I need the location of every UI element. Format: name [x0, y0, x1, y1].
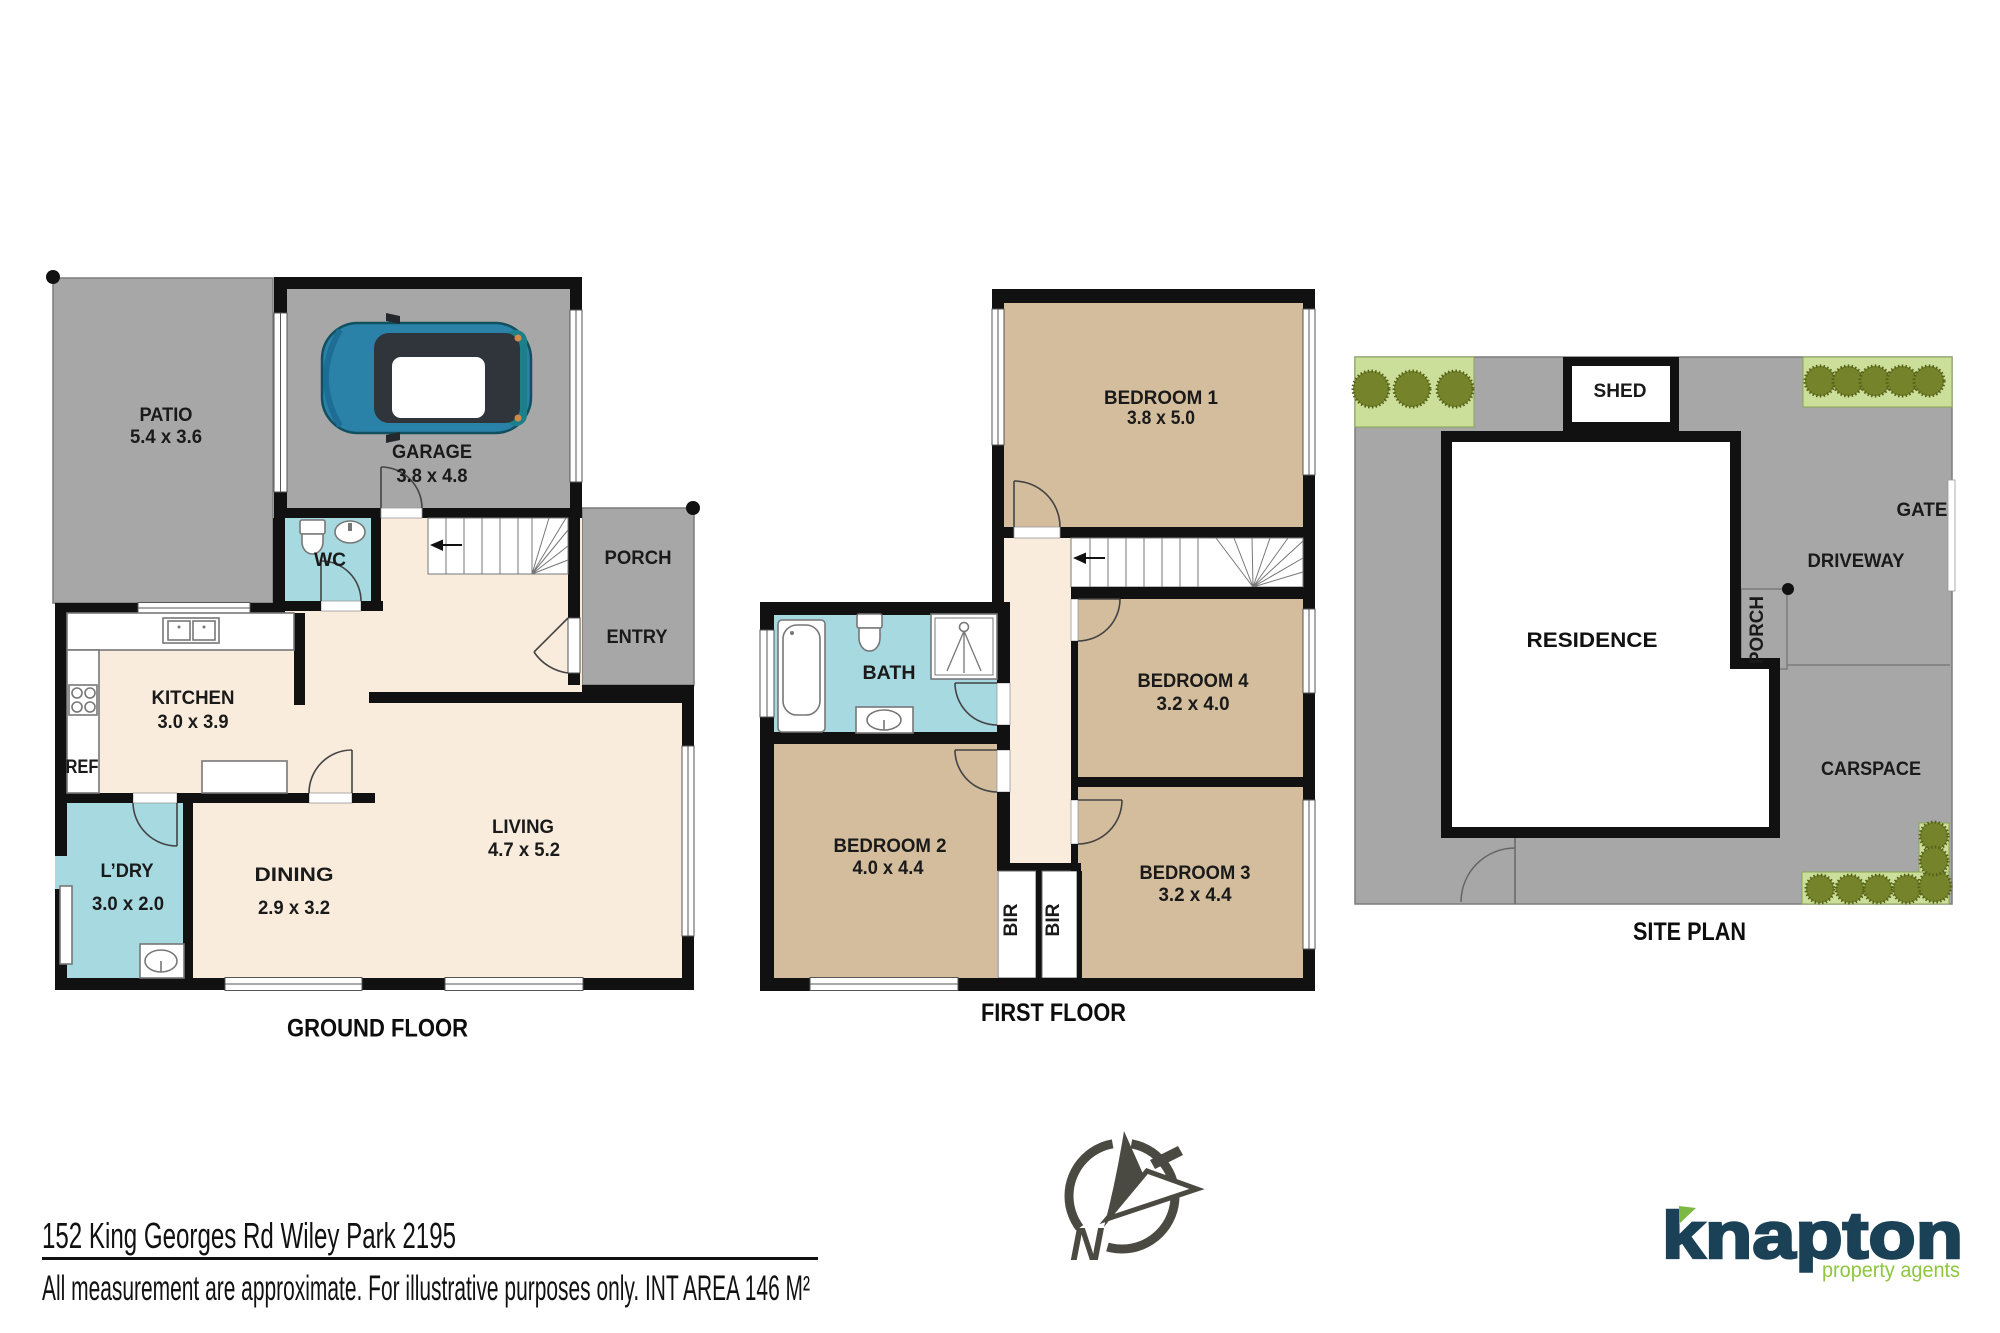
svg-text:GROUND FLOOR: GROUND FLOOR: [287, 1015, 468, 1043]
svg-text:BEDROOM 3: BEDROOM 3: [1140, 863, 1251, 884]
svg-text:N: N: [1070, 1218, 1104, 1270]
svg-text:All measurement are approximat: All measurement are approximate. For ill…: [42, 1269, 810, 1308]
svg-text:BEDROOM 4: BEDROOM 4: [1138, 671, 1249, 692]
svg-text:LIVING: LIVING: [492, 817, 554, 838]
svg-text:3.0 x 2.0: 3.0 x 2.0: [92, 894, 164, 915]
svg-text:SITE PLAN: SITE PLAN: [1633, 918, 1746, 946]
svg-text:KITCHEN: KITCHEN: [152, 688, 235, 709]
svg-text:property agents: property agents: [1822, 1259, 1960, 1282]
svg-text:BIR: BIR: [1001, 903, 1022, 936]
svg-text:BATH: BATH: [863, 663, 916, 684]
svg-text:RESIDENCE: RESIDENCE: [1527, 629, 1658, 652]
svg-text:4.7 x 5.2: 4.7 x 5.2: [488, 840, 560, 861]
svg-text:3.2 x 4.4: 3.2 x 4.4: [1159, 885, 1232, 906]
svg-text:GATE: GATE: [1897, 500, 1948, 521]
svg-text:4.0 x 4.4: 4.0 x 4.4: [853, 858, 924, 879]
svg-text:DINING: DINING: [255, 865, 334, 886]
svg-text:3.2 x 4.0: 3.2 x 4.0: [1157, 694, 1230, 715]
svg-text:GARAGE: GARAGE: [392, 442, 472, 463]
svg-text:ENTRY: ENTRY: [607, 627, 668, 648]
svg-text:3.8 x 5.0: 3.8 x 5.0: [1127, 408, 1195, 429]
svg-text:REF: REF: [66, 757, 99, 778]
svg-text:PORCH: PORCH: [605, 548, 672, 569]
svg-text:152 King Georges Rd Wiley Park: 152 King Georges Rd Wiley Park 2195: [42, 1215, 456, 1256]
svg-text:5.4 x 3.6: 5.4 x 3.6: [130, 427, 202, 448]
svg-text:BEDROOM 2: BEDROOM 2: [834, 836, 947, 857]
svg-text:L’DRY: L’DRY: [101, 861, 154, 882]
svg-text:FIRST FLOOR: FIRST FLOOR: [981, 999, 1126, 1027]
svg-text:SHED: SHED: [1594, 381, 1647, 402]
svg-text:2.9 x 3.2: 2.9 x 3.2: [258, 898, 330, 919]
svg-text:WC: WC: [314, 550, 346, 571]
svg-text:PATIO: PATIO: [140, 405, 193, 426]
svg-text:BEDROOM 1: BEDROOM 1: [1104, 388, 1218, 409]
svg-text:3.0 x 3.9: 3.0 x 3.9: [158, 712, 229, 733]
svg-text:DRIVEWAY: DRIVEWAY: [1808, 551, 1905, 572]
svg-text:3.8 x 4.8: 3.8 x 4.8: [397, 466, 468, 487]
svg-text:CARSPACE: CARSPACE: [1821, 759, 1921, 780]
svg-text:PORCH: PORCH: [1747, 596, 1768, 664]
svg-text:BIR: BIR: [1043, 903, 1064, 936]
